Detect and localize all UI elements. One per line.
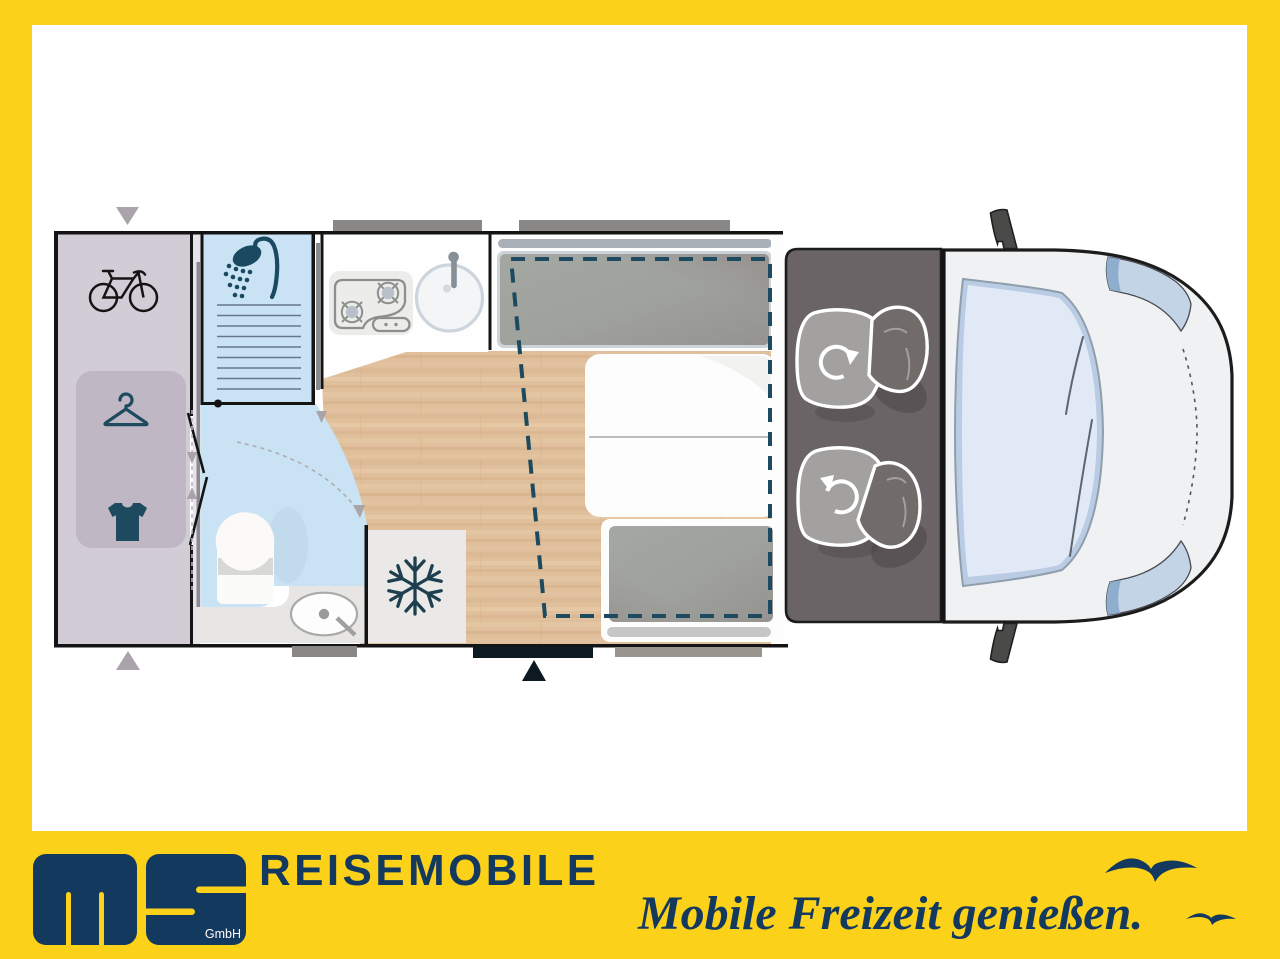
svg-text:GmbH: GmbH — [205, 927, 241, 941]
svg-text:Mobile Freizeit genießen.: Mobile Freizeit genießen. — [637, 887, 1143, 940]
svg-text:REISEMOBILE: REISEMOBILE — [259, 846, 600, 895]
